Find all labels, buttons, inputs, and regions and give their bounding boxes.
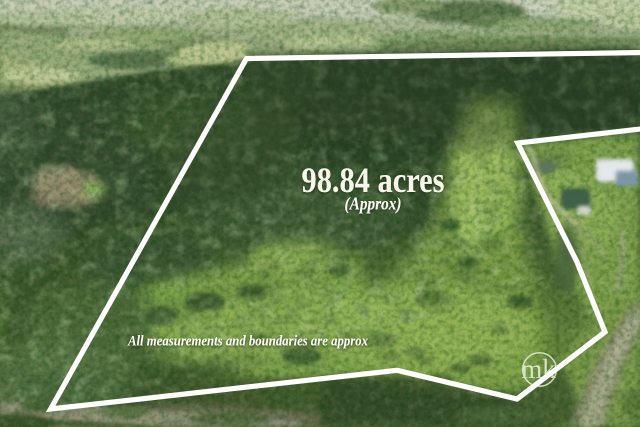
svg-text:(Approx): (Approx) bbox=[345, 193, 402, 213]
svg-text:All measurements and boundarie: All measurements and boundaries are appr… bbox=[127, 334, 368, 350]
